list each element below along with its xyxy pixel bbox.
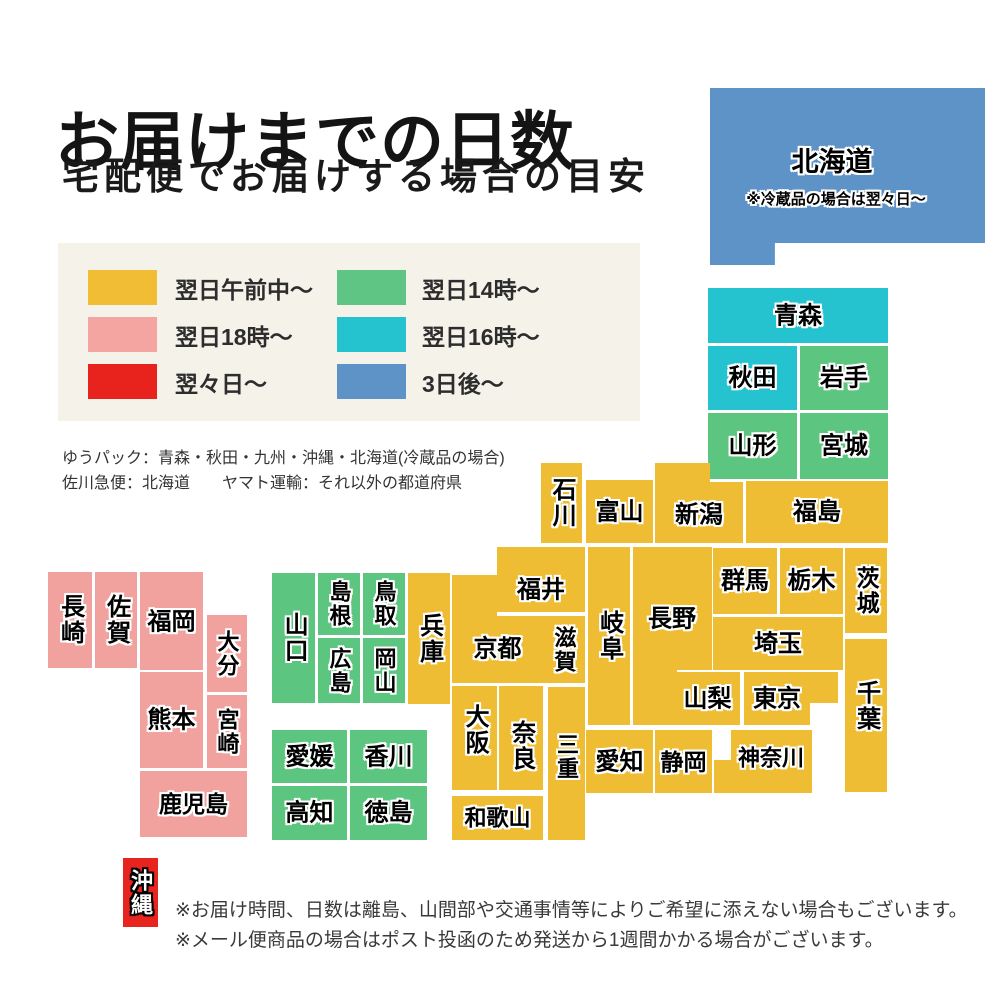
prefecture-label-chiba: 千葉	[853, 680, 878, 732]
prefecture-label-wakayama: 和歌山	[464, 806, 530, 829]
prefecture-label-gunma: 群馬	[721, 568, 769, 593]
prefecture-fukuoka: 福岡	[140, 572, 203, 670]
prefecture-tokushima: 徳島	[350, 786, 427, 840]
prefecture-tochigi: 栃木	[780, 548, 843, 614]
footnote-line-2: ※メール便商品の場合はポスト投函のため発送から1週間かかる場合がございます。	[175, 926, 968, 956]
prefecture-ishikawa: 石川	[541, 463, 582, 543]
prefecture-label-akita: 秋田	[729, 365, 777, 390]
prefecture-label-tokyo: 東京	[753, 686, 801, 711]
footnotes: ※お届け時間、日数は離島、山間部や交通事情等によりご希望に添えない場合もございま…	[175, 896, 968, 956]
prefecture-label-fukushima: 福島	[793, 499, 841, 524]
prefecture-label-shimane: 島根	[327, 580, 350, 628]
prefecture-label-hyogo: 兵庫	[416, 613, 441, 665]
prefecture-hiroshima: 広島	[318, 638, 360, 703]
prefecture-label-aichi: 愛知	[596, 749, 644, 774]
prefecture-label-okinawa: 沖縄	[129, 869, 152, 917]
prefecture-ehime: 愛媛	[272, 730, 347, 783]
prefecture-saga: 佐賀	[95, 572, 137, 668]
prefecture-okayama: 岡山	[363, 638, 405, 703]
prefecture-label-fukuoka: 福岡	[148, 609, 196, 634]
prefecture-tokyo: 東京	[744, 672, 838, 725]
prefecture-kochi: 高知	[272, 786, 347, 840]
prefecture-ibaraki: 茨城	[845, 548, 887, 633]
prefecture-label-hiroshima: 広島	[327, 647, 350, 695]
prefecture-label-saga: 佐賀	[103, 594, 128, 646]
prefecture-kagoshima: 鹿児島	[140, 771, 247, 837]
prefecture-osaka: 大阪	[452, 686, 497, 790]
prefecture-chiba: 千葉	[845, 639, 887, 792]
prefecture-label-kagoshima: 鹿児島	[159, 792, 228, 816]
prefecture-label-miyagi: 宮城	[820, 433, 868, 458]
prefecture-label-iwate: 岩手	[820, 365, 868, 390]
prefecture-label-miyazaki: 宮崎	[215, 708, 238, 756]
prefecture-mie: 三重	[548, 687, 585, 840]
footnote-line-1: ※お届け時間、日数は離島、山間部や交通事情等によりご希望に添えない場合もございま…	[175, 896, 968, 926]
prefecture-label-nagasaki: 長崎	[57, 594, 82, 646]
prefecture-wakayama: 和歌山	[452, 796, 543, 840]
prefecture-yamagata: 山形	[708, 413, 797, 479]
prefecture-label-kagawa: 香川	[365, 744, 413, 769]
prefecture-miyagi: 宮城	[800, 413, 888, 479]
prefecture-label-toyama: 富山	[596, 499, 644, 524]
prefecture-label-ehime: 愛媛	[286, 744, 334, 769]
prefecture-label-yamanashi: 山梨	[684, 686, 732, 711]
prefecture-label-fukui: 福井	[517, 577, 565, 602]
prefecture-toyama: 富山	[586, 480, 653, 543]
prefecture-gifu: 岐阜	[588, 547, 630, 725]
japan-map: 北海道※冷蔵品の場合は翌々日〜青森秋田岩手山形宮城福島新潟石川富山福井岐阜長野群…	[0, 0, 1000, 1000]
prefecture-label-shizuoka: 静岡	[661, 749, 707, 773]
prefecture-aichi: 愛知	[586, 730, 653, 793]
prefecture-label-nagano: 長野	[648, 606, 696, 631]
prefecture-shizuoka: 静岡	[655, 730, 712, 793]
prefecture-label-nara: 奈良	[508, 720, 533, 772]
prefecture-label-ishikawa: 石川	[549, 477, 574, 529]
prefecture-label-kochi: 高知	[286, 800, 334, 825]
prefecture-label-yamaguchi: 山口	[281, 612, 306, 664]
prefecture-yamaguchi: 山口	[272, 573, 315, 703]
prefecture-nara: 奈良	[499, 686, 543, 790]
prefecture-label-hokkaido: 北海道	[792, 148, 873, 176]
prefecture-label-yamagata: 山形	[729, 433, 777, 458]
prefecture-label-oita: 大分	[215, 630, 238, 678]
prefecture-label-tottori: 鳥取	[372, 580, 395, 628]
prefecture-yamanashi: 山梨	[675, 672, 740, 725]
prefecture-label-tochigi: 栃木	[788, 568, 836, 593]
prefecture-label-kumamoto: 熊本	[148, 707, 196, 732]
prefecture-label-okayama: 岡山	[372, 647, 395, 695]
prefecture-gunma: 群馬	[713, 548, 777, 614]
prefecture-saitama: 埼玉	[713, 617, 843, 670]
prefecture-label-kanagawa: 神奈川	[738, 746, 804, 769]
prefecture-aomori: 青森	[708, 288, 888, 343]
prefecture-label-saitama: 埼玉	[754, 631, 802, 656]
prefecture-miyazaki: 宮崎	[207, 695, 247, 768]
prefecture-tottori: 鳥取	[363, 573, 405, 635]
prefecture-label-shiga: 滋賀	[552, 626, 575, 674]
prefecture-label-tokushima: 徳島	[365, 800, 413, 825]
prefecture-fukushima: 福島	[746, 481, 888, 543]
prefecture-label-niigata: 新潟	[675, 502, 723, 527]
prefecture-kumamoto: 熊本	[140, 672, 203, 768]
prefecture-hokkaido: 北海道※冷蔵品の場合は翌々日〜	[710, 88, 985, 265]
prefecture-label-gifu: 岐阜	[596, 610, 621, 662]
prefecture-okinawa: 沖縄	[123, 858, 158, 927]
prefecture-kanagawa: 神奈川	[714, 730, 812, 793]
prefecture-shiga: 滋賀	[543, 616, 585, 683]
prefecture-label-mie: 三重	[555, 733, 578, 781]
prefecture-kagawa: 香川	[350, 730, 427, 783]
prefecture-label-ibaraki: 茨城	[854, 566, 878, 616]
prefecture-fukui: 福井	[497, 547, 585, 612]
prefecture-label-kyoto: 京都	[474, 636, 522, 661]
prefecture-shimane: 島根	[318, 573, 360, 635]
prefecture-hyogo: 兵庫	[408, 573, 450, 704]
prefecture-akita: 秋田	[708, 346, 797, 410]
prefecture-note-hokkaido: ※冷蔵品の場合は翌々日〜	[746, 192, 926, 208]
prefecture-label-osaka: 大阪	[462, 704, 487, 756]
prefecture-iwate: 岩手	[800, 346, 888, 410]
prefecture-nagasaki: 長崎	[48, 572, 92, 668]
prefecture-oita: 大分	[207, 615, 247, 692]
prefecture-label-aomori: 青森	[774, 303, 822, 328]
